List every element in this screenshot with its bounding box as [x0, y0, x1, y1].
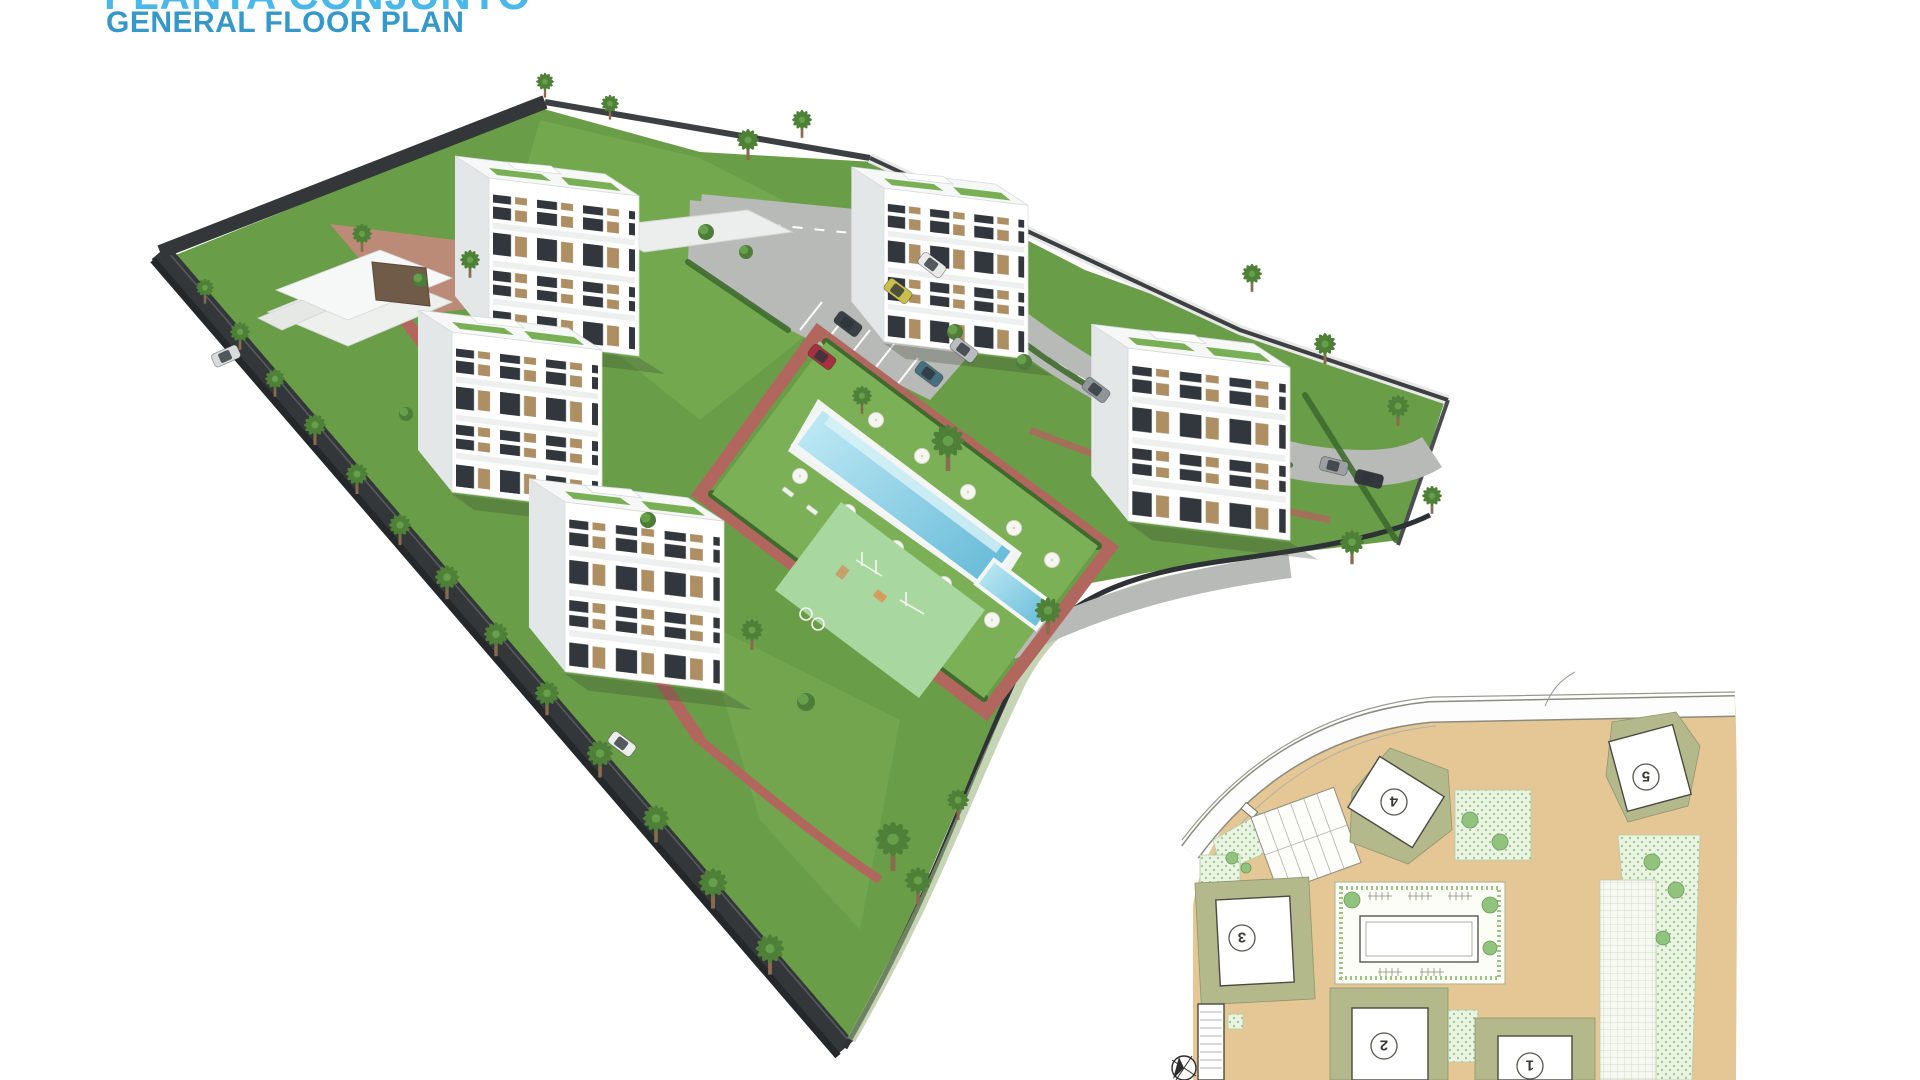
plan-pool [1360, 916, 1478, 962]
plan-building-label: 4 [1381, 789, 1407, 815]
svg-text:4: 4 [1389, 793, 1398, 810]
plan-building-label: 5 [1633, 764, 1659, 790]
masterplan-illustration: 12345 [0, 0, 1920, 1080]
svg-text:5: 5 [1642, 768, 1650, 785]
svg-text:2: 2 [1380, 1037, 1388, 1054]
plan-footprint-partial [1198, 1004, 1224, 1080]
plan-building-label: 2 [1371, 1033, 1397, 1059]
plan-building-label: 3 [1229, 925, 1255, 951]
site-plan-inset: 12345 [1172, 672, 1737, 1080]
page: PLANTA CONJUNTO GENERAL FLOOR PLAN [0, 0, 1920, 1080]
north-arrow-compass [1172, 1056, 1196, 1080]
svg-text:1: 1 [1526, 1057, 1534, 1074]
plan-building-label: 1 [1517, 1053, 1543, 1079]
svg-text:3: 3 [1238, 929, 1246, 946]
